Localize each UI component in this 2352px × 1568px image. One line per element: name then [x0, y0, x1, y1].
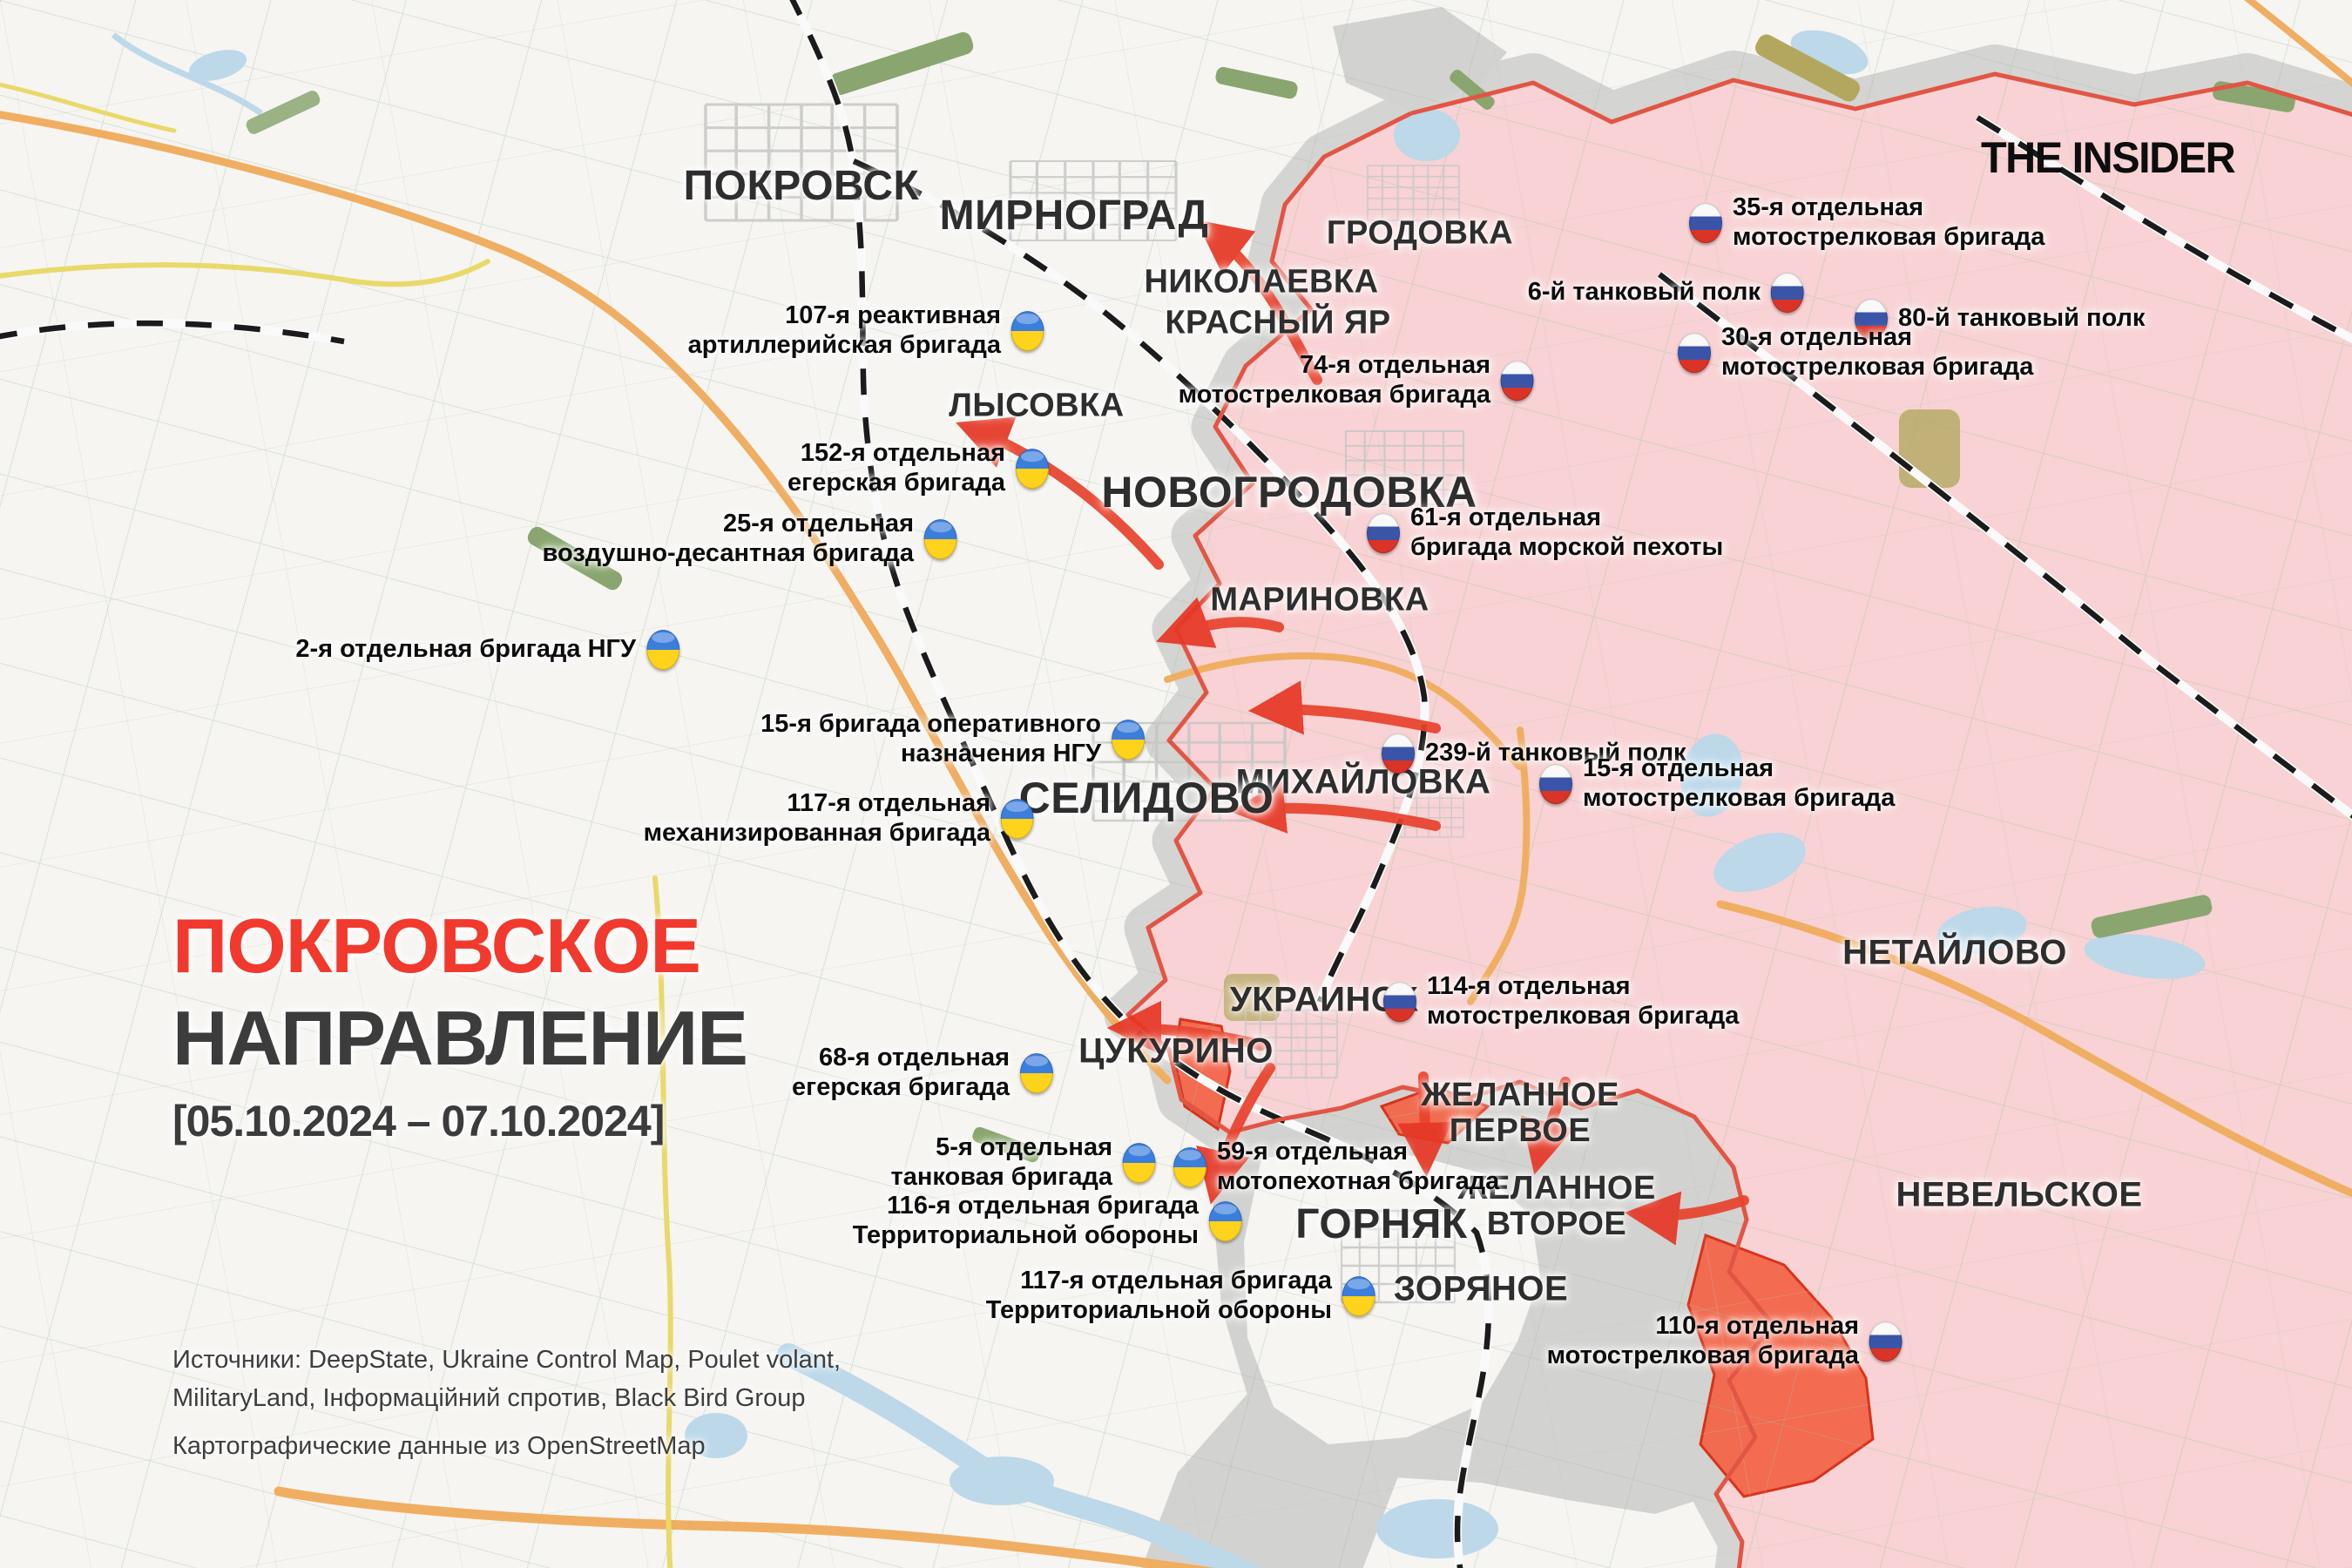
sources-block: Источники: DeepState, Ukraine Control Ma…: [172, 1342, 841, 1466]
city-label-pokrovsk: ПОКРОВСК: [684, 164, 920, 209]
city-label-lysovka: ЛЫСОВКА: [949, 388, 1125, 423]
unit-name: 117-я отдельная бригада Территориальной …: [986, 1267, 1332, 1326]
unit-name: 30-я отдельная мотострелковая бригада: [1721, 323, 2033, 382]
unit-ru-114-motorized: 114-я отдельная мотострелковая бригада: [1383, 972, 1739, 1031]
unit-name: 110-я отдельная мотострелковая бригада: [1547, 1312, 1859, 1371]
unit-name: 2-я отдельная бригада НГУ: [295, 635, 636, 665]
unit-ua-5-tank: 5-я отдельная танковая бригада: [891, 1133, 1156, 1193]
city-label-krasny-yar: КРАСНЫЙ ЯР: [1165, 305, 1390, 341]
sources-line2: MilitaryLand, Інформаційний спротив, Bla…: [172, 1380, 841, 1418]
map-date-range: [05.10.2024 – 07.10.2024]: [172, 1099, 747, 1143]
russia-flag-icon: [1382, 733, 1415, 774]
the-insider-logo: THE INSIDER: [1981, 132, 2234, 183]
unit-name: 107-я реактивная артиллерийская бригада: [688, 301, 1001, 361]
unit-ru-110-motorized: 110-я отдельная мотострелковая бригада: [1547, 1312, 1903, 1371]
unit-name: 152-я отдельная егерская бригада: [787, 439, 1005, 498]
unit-ua-116-tro: 116-я отдельная бригада Территориальной …: [853, 1192, 1242, 1251]
sources-line1: Источники: DeepState, Ukraine Control Ma…: [172, 1342, 841, 1380]
sources-line3: Картографические данные из OpenStreetMap: [172, 1428, 841, 1466]
unit-ru-74-motorized: 74-я отдельная мотострелковая бригада: [1179, 351, 1534, 410]
ukraine-flag-icon: [1123, 1143, 1156, 1183]
city-label-marinovka: МАРИНОВКА: [1210, 582, 1429, 618]
city-label-gornyak: ГОРНЯК: [1295, 1202, 1467, 1247]
russia-flag-icon: [1771, 273, 1804, 313]
unit-ru-15-motorized: 15-я отдельная мотострелковая бригада: [1539, 754, 1895, 814]
unit-name: 61-я отдельная бригада морской пехоты: [1410, 504, 1723, 563]
city-label-nikolaevka: НИКОЛАЕВКА: [1144, 264, 1378, 300]
unit-name: 68-я отдельная егерская бригада: [792, 1044, 1010, 1103]
unit-ru-35-motorized: 35-я отдельная мотострелковая бригада: [1689, 193, 2044, 253]
russia-flag-icon: [1678, 333, 1711, 373]
ukraine-flag-icon: [1001, 799, 1034, 839]
unit-ua-15-ngu: 15-я бригада оперативного назначения НГУ: [760, 710, 1145, 769]
unit-name: 114-я отдельная мотострелковая бригада: [1427, 972, 1739, 1031]
unit-name: 5-я отдельная танковая бригада: [891, 1133, 1112, 1193]
ukraine-flag-icon: [646, 630, 679, 670]
unit-name: 117-я отдельная механизированная бригада: [644, 789, 990, 848]
city-label-grodovka: ГРОДОВКА: [1327, 215, 1513, 251]
russia-flag-icon: [1689, 203, 1722, 243]
russia-flag-icon: [1539, 764, 1572, 804]
unit-name: 25-я отдельная воздушно-десантная бригад…: [543, 510, 914, 569]
map-title-line1: ПОКРОВСКОЕ: [172, 908, 747, 984]
unit-ru-61-marine: 61-я отдельная бригада морской пехоты: [1367, 504, 1723, 563]
unit-name: 74-я отдельная мотострелковая бригада: [1179, 351, 1490, 410]
ukraine-flag-icon: [1112, 720, 1145, 760]
unit-ua-2-ngu: 2-я отдельная бригада НГУ: [295, 630, 679, 670]
unit-name: 116-я отдельная бригада Территориальной …: [853, 1192, 1199, 1251]
city-label-selidovo: СЕЛИДОВО: [1019, 774, 1274, 821]
ukraine-flag-icon: [1209, 1201, 1242, 1241]
city-label-zoryanoe: ЗОРЯНОЕ: [1394, 1270, 1568, 1308]
russia-flag-icon: [1501, 361, 1534, 401]
russia-flag-icon: [1367, 513, 1400, 553]
unit-name: 59-я отдельная мотопехотная бригада: [1217, 1138, 1499, 1197]
ukraine-flag-icon: [924, 519, 957, 559]
city-label-tsukurino: ЦУКУРИНО: [1078, 1032, 1274, 1070]
city-label-netailovo: НЕТАЙЛОВО: [1842, 934, 2067, 971]
unit-ua-152-jaeger: 152-я отдельная егерская бригада: [787, 439, 1049, 498]
unit-name: 35-я отдельная мотострелковая бригада: [1733, 193, 2044, 253]
unit-ua-68-jaeger: 68-я отдельная егерская бригада: [792, 1044, 1053, 1103]
unit-ua-117-tro: 117-я отдельная бригада Территориальной …: [986, 1267, 1375, 1326]
ukraine-flag-icon: [1016, 449, 1049, 489]
unit-ru-30-motorized: 30-я отдельная мотострелковая бригада: [1678, 323, 2033, 382]
russia-flag-icon: [1383, 982, 1416, 1022]
unit-ua-59-motorized: 59-я отдельная мотопехотная бригада: [1173, 1138, 1499, 1197]
ukraine-flag-icon: [1020, 1053, 1053, 1093]
unit-ru-6-tank: 6-й танковый полк: [1528, 273, 1804, 313]
city-label-mirnograd: МИРНОГРАД: [940, 193, 1209, 239]
ukraine-flag-icon: [1342, 1276, 1375, 1316]
unit-name: 15-я отдельная мотострелковая бригада: [1583, 754, 1895, 814]
unit-name: 6-й танковый полк: [1528, 278, 1761, 308]
ukraine-flag-icon: [1011, 311, 1044, 351]
unit-name: 15-я бригада оперативного назначения НГУ: [760, 710, 1101, 769]
map-title-line2: НАПРАВЛЕНИЕ: [172, 1000, 747, 1077]
city-label-nevelskoe: НЕВЕЛЬСКОЕ: [1896, 1176, 2142, 1213]
map-title-block: ПОКРОВСКОЕ НАПРАВЛЕНИЕ [05.10.2024 – 07.…: [172, 908, 747, 1143]
unit-ua-107-rocket-artillery: 107-я реактивная артиллерийская бригада: [688, 301, 1044, 361]
russia-flag-icon: [1869, 1321, 1903, 1362]
unit-ua-25-air-assault: 25-я отдельная воздушно-десантная бригад…: [543, 510, 957, 569]
unit-ua-117-mechanized: 117-я отдельная механизированная бригада: [644, 789, 1034, 848]
ukraine-flag-icon: [1173, 1147, 1206, 1187]
